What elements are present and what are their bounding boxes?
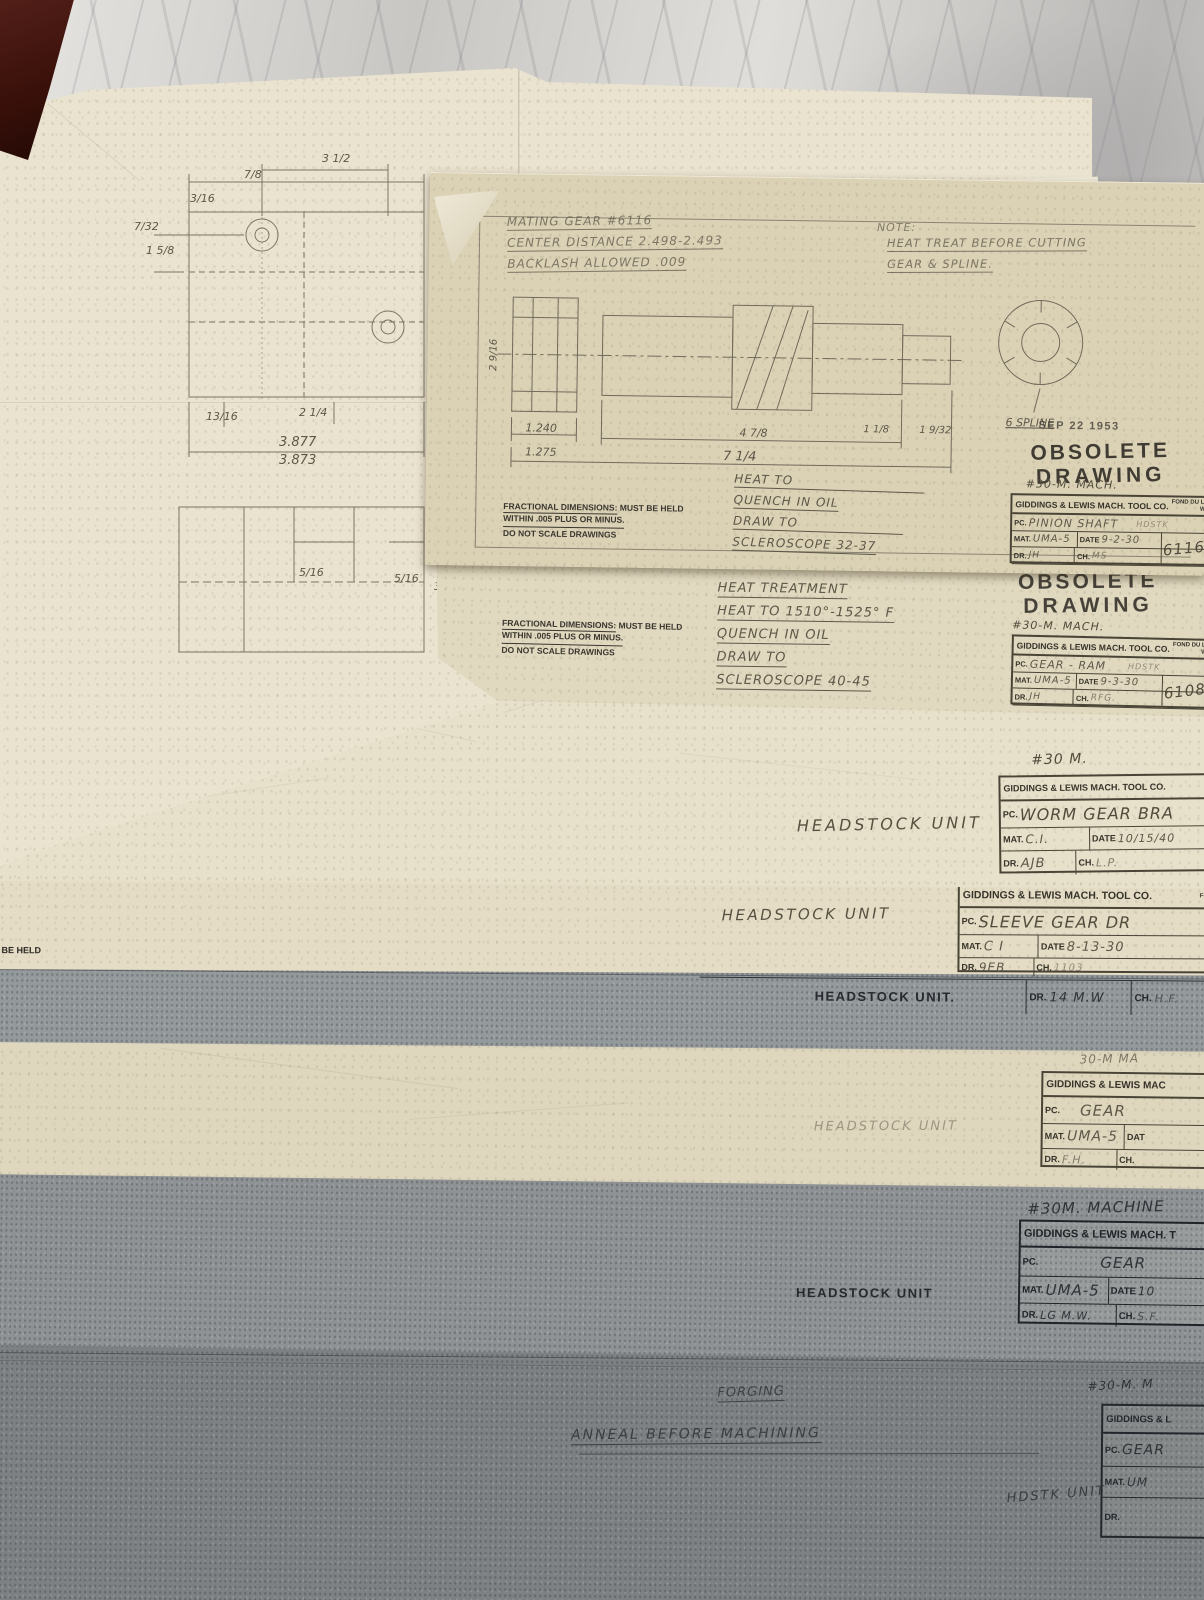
dim-label: 3/16 (190, 192, 215, 205)
company-row: GIDDINGS & LEWIS MACH. TOOL CO. (1000, 775, 1204, 802)
pc-label: PC. (1012, 518, 1029, 527)
dr-label: DR. (1026, 992, 1049, 1003)
mat-value: C.I. (1025, 832, 1049, 846)
dim-label: 1 1/8 (863, 424, 889, 435)
note-line: MATING GEAR #6116 (507, 213, 653, 231)
date-value: 9-2-30 (1101, 534, 1140, 546)
fractional-note: FRACTIONAL DIMENSIONS: MUST BE HELD WITH… (503, 500, 684, 541)
machine-note: #30-M. M (1087, 1377, 1154, 1394)
dr-label: DR. (1012, 551, 1029, 560)
machine-note: #30 M. (1031, 751, 1088, 769)
machine-note: #30-M. MACH. (1012, 618, 1104, 633)
heat-note-line: HEAT TO (734, 472, 924, 494)
pc-note: HDSTK (1136, 519, 1169, 528)
pc-label: PC. (960, 916, 979, 926)
title-block-worm-gear: GIDDINGS & LEWIS MACH. TOOL CO. PC. WORM… (998, 773, 1204, 874)
drawing-number: 6116 (1161, 532, 1204, 564)
heat-note-line: HEAT TREATMENT (717, 580, 847, 599)
dr-label: DR. (959, 962, 979, 972)
dim-label: 4 7/8 (739, 426, 767, 439)
dim-label: 2 9/16 (488, 339, 499, 371)
pc-label: PC. (1001, 809, 1020, 819)
mat-label: MAT. (1013, 675, 1034, 684)
ch-label: CH. (1117, 1155, 1137, 1165)
dr-value: JH (1029, 692, 1041, 702)
pc-value: GEAR - RAM (1030, 657, 1107, 672)
mat-label: MAT. (1001, 834, 1025, 844)
dr-label: DR. (1001, 858, 1021, 868)
pc-value: GEAR (1100, 1254, 1146, 1273)
ch-label: CH. (1034, 963, 1054, 973)
pc-value: PINION SHAFT (1029, 516, 1119, 530)
title-block-gear-uma5: GIDDINGS & LEWIS MAC PC. GEAR MAT. UMA-5… (1040, 1071, 1204, 1170)
fit-dim-upper: 3.877 (279, 435, 317, 450)
pencil-dimension-labels: 3/16 7/8 3 1/2 3/8 7/32 1 5/8 13/16 2 1/… (134, 152, 460, 593)
fit-dim-lower: 3.873 (279, 453, 316, 468)
dr-value: 9EB (979, 960, 1006, 974)
shaft-dimension-labels: 1.240 1.275 4 7/8 7 1/4 1 1/8 1 9/32 2 9… (487, 339, 1055, 469)
date-label: DATE (1077, 677, 1101, 687)
company-row: GIDDINGS & L (1103, 1406, 1204, 1436)
fractional-note: FRACTIONAL DIMENSIONS: MUST BE HELD WITH… (501, 617, 682, 660)
dr-value: F.H. (1062, 1153, 1086, 1166)
mat-label: MAT. (960, 941, 984, 951)
dr-label: DR. (1042, 1154, 1062, 1164)
note-line: CENTER DISTANCE 2.498-2.493 (507, 233, 723, 252)
dr-label: DR. (1020, 1309, 1041, 1320)
company-name: GIDDINGS & LEWIS MACH. TOOL CO. (963, 889, 1152, 902)
title-block-sleeve-gear: GIDDINGS & LEWIS MACH. TOOL CO. FOND PC.… (957, 882, 1204, 973)
scratch-mark (409, 1102, 628, 1119)
heat-note-line: SCLEROSCOPE 32-37 (732, 535, 876, 556)
mat-label: MAT. (1020, 1284, 1046, 1295)
dim-label: 5/16 (299, 566, 324, 579)
mat-value: UMA-5 (1033, 533, 1071, 545)
obsolete-line1: OBSOLETE (1017, 439, 1182, 466)
dim-label: 7/32 (134, 220, 159, 233)
company-name: GIDDINGS & LEWIS MAC (1046, 1079, 1166, 1091)
date-value: 9-3-30 (1100, 676, 1139, 688)
dim-label: 7/8 (244, 168, 262, 181)
headstock-note: HDSTK UNIT (1006, 1484, 1107, 1507)
heat-note-line: HEAT TO 1510°-1525° F (717, 603, 894, 622)
dim-label: 1 5/8 (146, 244, 174, 257)
ch-value: S.F. (1137, 1310, 1160, 1323)
company-row: GIDDINGS & LEWIS MAC (1043, 1073, 1204, 1100)
date-label: DATE (1078, 535, 1102, 544)
pc-label: PC. (1020, 1256, 1040, 1267)
pc-note: HDSTK (1128, 662, 1161, 672)
heat-note-line: QUENCH IN OIL (733, 493, 838, 512)
fractional-rest: MUST BE HELD (620, 503, 684, 514)
mat-value: UMA-5 (1067, 1128, 1118, 1145)
note-title: NOTE: (877, 220, 1087, 234)
headstock-note: HEADSTOCK UNIT (814, 1119, 958, 1135)
title-block-gear-ram: GIDDINGS & LEWIS MACH. TOOL CO. FOND DU … (1010, 634, 1204, 708)
mat-label: MAT. (1103, 1477, 1127, 1487)
headstock-note: HEADSTOCK UNIT. (815, 988, 956, 1004)
pc-value: SLEEVE GEAR DR (979, 912, 1132, 932)
forging-note: FORGING (717, 1384, 785, 1403)
date-value: 8-13-30 (1067, 939, 1125, 954)
ch-label: CH. (1131, 993, 1154, 1004)
fractional-line3: DO NOT SCALE DRAWINGS (501, 643, 681, 659)
pc-label: PC. (1103, 1445, 1122, 1455)
pc-label: PC. (1013, 659, 1030, 668)
heat-note-line: SCLEROSCOPE 40-45 (716, 672, 871, 691)
company-location: FOND DU LACWIS. (1171, 500, 1204, 513)
sheet-forging-gear: FORGING ANNEAL BEFORE MACHINING #30-M. M… (0, 1326, 1204, 1600)
dr-value: 14 M.W (1050, 990, 1105, 1005)
headstock-note: HEADSTOCK UNIT (796, 1285, 933, 1301)
obsolete-stamp: OBSOLETE DRAWING (1008, 569, 1169, 619)
heat-note-line: DRAW TO (716, 649, 786, 667)
headstock-note: HEADSTOCK UNIT (722, 904, 891, 924)
dim-label: 1 9/32 (919, 425, 951, 436)
drawing-number: 6108 (1161, 675, 1204, 707)
dim-label: 3 1/2 (322, 152, 350, 165)
dim-label: 5/16 (394, 572, 419, 585)
date-label: DATE (1109, 1285, 1138, 1296)
company-location: FOND DU LACWIS. (1173, 642, 1204, 656)
ch-label: CH. (1075, 552, 1092, 561)
company-name: GIDDINGS & LEWIS MACH. T (1024, 1228, 1176, 1242)
sheet-pinion-shaft: MATING GEAR #6116 CENTER DISTANCE 2.498-… (425, 172, 1204, 576)
dr-label: DR. (1012, 692, 1029, 701)
mat-value: UMA-5 (1034, 675, 1072, 687)
dr-value: AJB (1021, 856, 1046, 871)
headstock-note: HEADSTOCK UNIT (797, 813, 982, 836)
machine-note: 30-M MA (1079, 1051, 1139, 1066)
pc-value: WORM GEAR BRA (1020, 803, 1174, 824)
fractional-line3: DO NOT SCALE DRAWINGS (503, 527, 683, 542)
dim-label: 1.275 (525, 445, 557, 458)
pc-value: GEAR (1122, 1442, 1165, 1458)
machine-note: #30M. MACHINE (1027, 1197, 1165, 1218)
ch-label: CH. (1076, 857, 1096, 867)
heat-note-line: DRAW TO (733, 514, 903, 535)
pc-label: PC. (1043, 1105, 1062, 1115)
dim-label: 1.240 (525, 421, 557, 434)
photo-of-blueprint-stack: FORGING ANNEAL BEFORE MACHINING #30-M. M… (0, 0, 1204, 1600)
mat-label: MAT. (1012, 534, 1033, 543)
date-stamp: SEP 22 1953 (1038, 420, 1119, 433)
edge-note-fragment: T BE HELD (0, 945, 41, 955)
title-strip: HEADSTOCK UNIT. DR. 14 M.W CH. H.F. (700, 977, 1204, 1016)
title-block-machine-gear: GIDDINGS & LEWIS MACH. T PC. GEAR MAT. U… (1018, 1220, 1204, 1327)
heat-treatment-notes: HEAT TO QUENCH IN OIL DRAW TO SCLEROSCOP… (732, 470, 924, 557)
date-value: 10/15/40 (1118, 831, 1176, 845)
ch-value: MS (1092, 551, 1108, 561)
fractional-rest: MUST BE HELD (618, 620, 682, 631)
company-row: GIDDINGS & LEWIS MACH. T (1021, 1222, 1204, 1251)
mat-value: C I (984, 939, 1004, 954)
title-block-pinion: GIDDINGS & LEWIS MACH. TOOL CO. FOND DU … (1010, 493, 1204, 566)
shaft-linework (496, 293, 1083, 475)
company-name: GIDDINGS & LEWIS MACH. TOOL CO. (1003, 782, 1165, 794)
date-label: DATE (1039, 942, 1067, 952)
date-value: 10 (1138, 1284, 1155, 1298)
obsolete-line2: DRAWING (1008, 593, 1168, 619)
dim-label: 2 1/4 (299, 406, 327, 419)
pc-value: GEAR (1080, 1101, 1126, 1120)
dim-label: 7 1/4 (723, 449, 757, 464)
dim-label: 13/16 (206, 410, 238, 423)
scratch-mark (680, 753, 919, 781)
dr-value: JH (1029, 550, 1041, 560)
company-name: GIDDINGS & LEWIS MACH. TOOL CO. (1017, 640, 1170, 653)
ch-value: L.P. (1096, 856, 1118, 869)
dr-label: DR. (1102, 1512, 1122, 1522)
date-label: DATE (1090, 833, 1118, 843)
company-name: GIDDINGS & L (1106, 1413, 1171, 1425)
machine-note: #30-M. MACH. (1026, 477, 1118, 491)
mat-value: UM (1127, 1475, 1148, 1489)
dr-value: LG M.W. (1040, 1308, 1092, 1322)
date-label: DAT (1125, 1132, 1147, 1142)
fractional-line2: WITHIN .005 PLUS OR MINUS. (503, 512, 625, 528)
company-name: GIDDINGS & LEWIS MACH. TOOL CO. (1015, 499, 1168, 511)
mat-label: MAT. (1043, 1131, 1067, 1141)
ch-value: RFG. (1091, 693, 1116, 704)
title-block-forging: GIDDINGS & L PC. GEAR MAT. UM DR. (1100, 1404, 1204, 1540)
anneal-underline-extension (579, 1453, 1039, 1455)
ch-label: CH. (1117, 1310, 1138, 1321)
scratch-mark (161, 1048, 458, 1089)
mat-value: UMA-5 (1045, 1281, 1099, 1300)
heat-note-line: QUENCH IN OIL (717, 626, 830, 645)
anneal-note: ANNEAL BEFORE MACHINING (571, 1425, 821, 1445)
ch-value: H.F. (1155, 992, 1179, 1005)
company-location: FOND (1200, 893, 1204, 899)
ch-label: CH. (1074, 693, 1091, 702)
ch-value: 1103 (1054, 962, 1084, 973)
pencil-linework (154, 164, 424, 652)
note-line: HEAT TREAT BEFORE CUTTING (887, 235, 1087, 252)
heat-treatment-notes: HEAT TREATMENT HEAT TO 1510°-1525° F QUE… (716, 578, 894, 691)
